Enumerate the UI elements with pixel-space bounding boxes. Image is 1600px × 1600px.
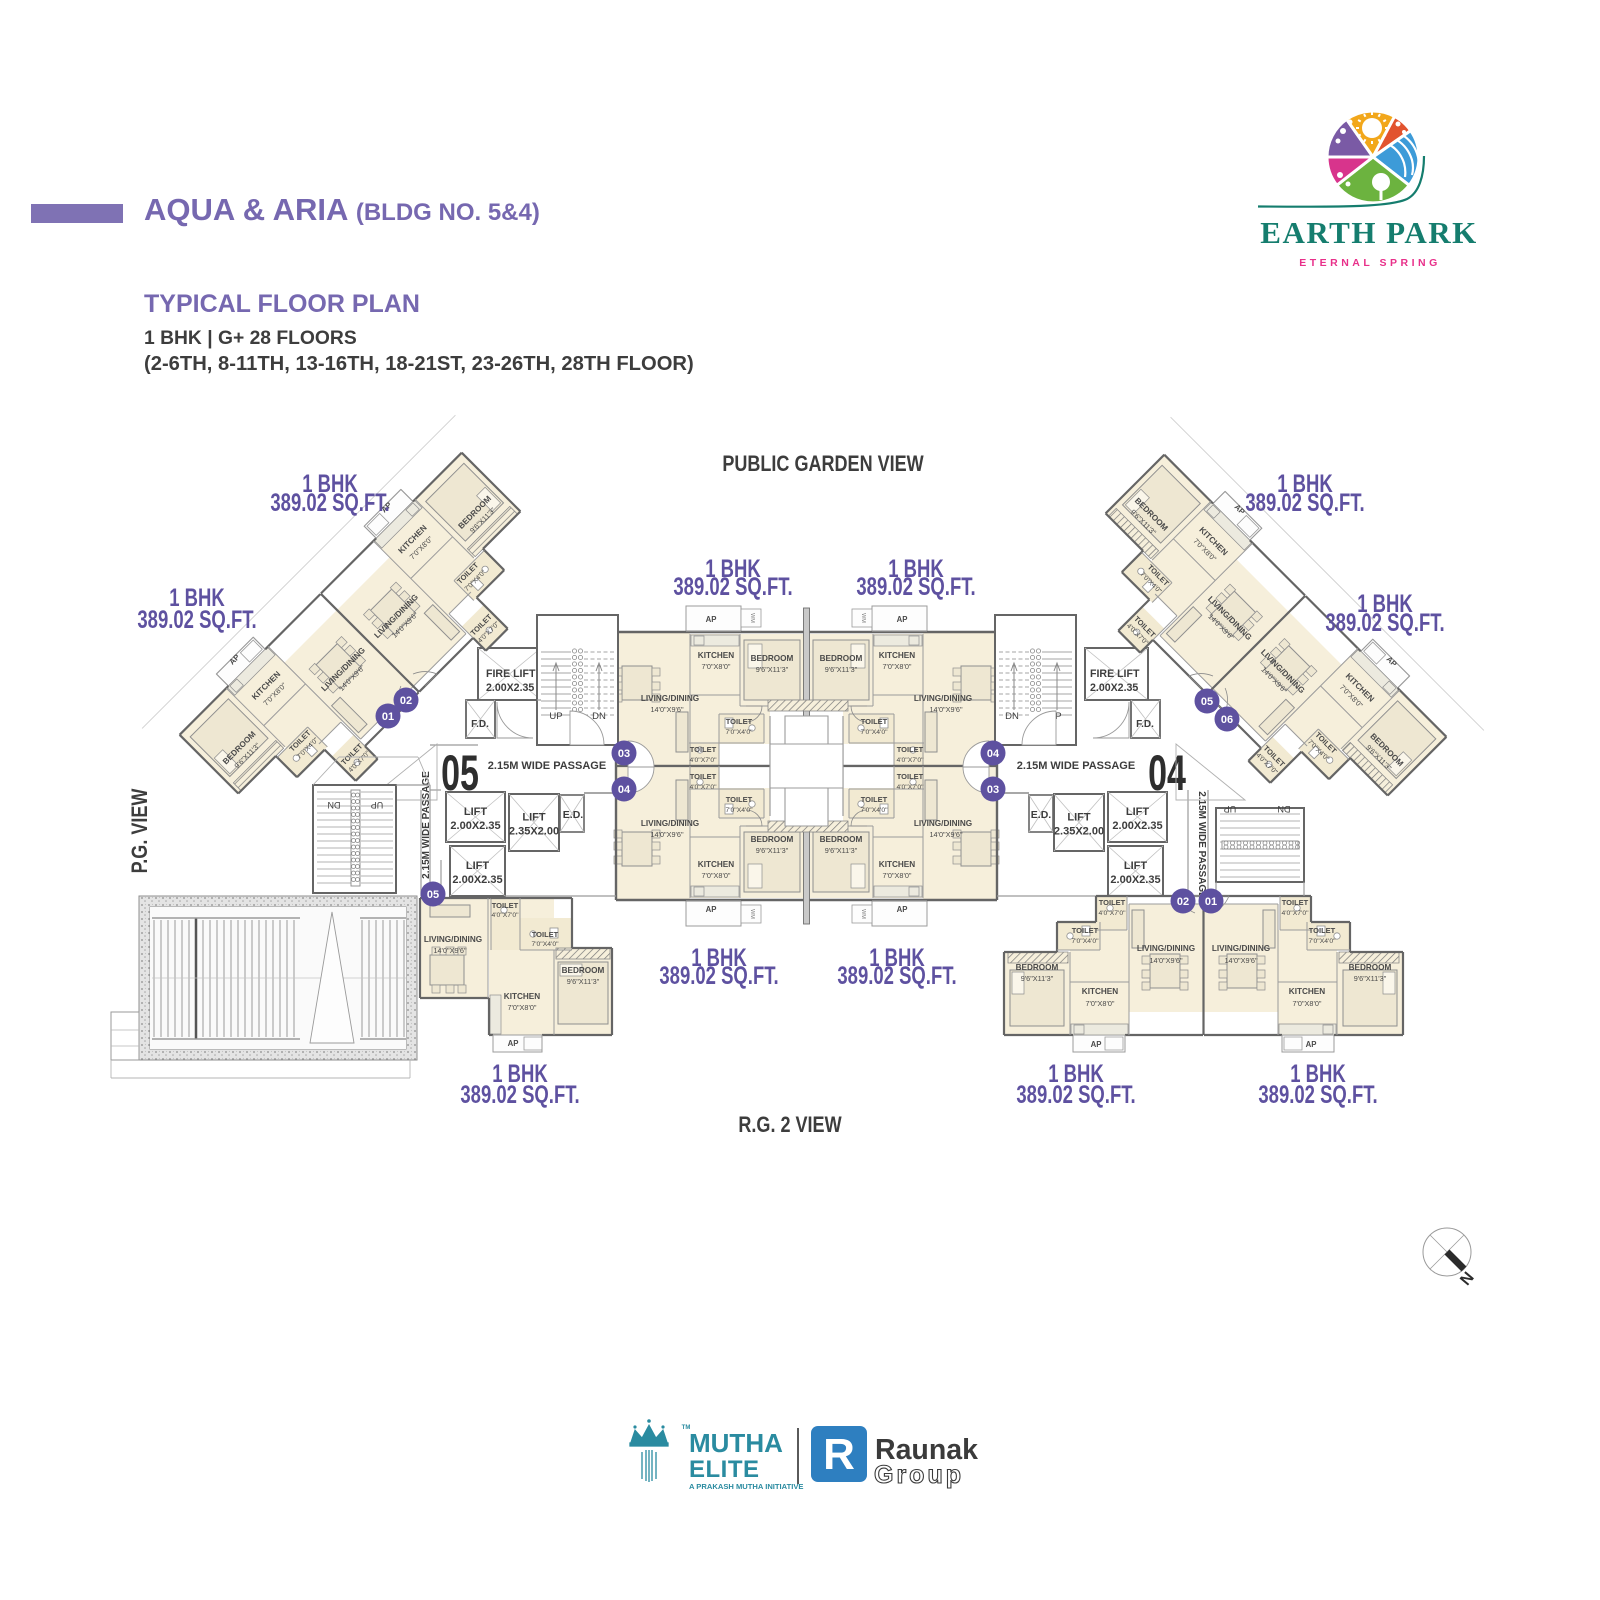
svg-text:4'0"X7'0": 4'0"X7'0" bbox=[1281, 910, 1309, 917]
svg-text:7'0"X8'0": 7'0"X8'0" bbox=[701, 662, 730, 671]
svg-text:7'0"X8'0": 7'0"X8'0" bbox=[701, 871, 730, 880]
svg-text:9'6"X11'3": 9'6"X11'3" bbox=[1354, 974, 1387, 983]
svg-text:LIVING/DINING: LIVING/DINING bbox=[1137, 944, 1195, 953]
svg-text:05: 05 bbox=[427, 889, 439, 901]
svg-text:BEDROOM: BEDROOM bbox=[820, 654, 863, 663]
svg-text:9'6"X11'3": 9'6"X11'3" bbox=[825, 846, 858, 855]
svg-text:01: 01 bbox=[382, 711, 394, 723]
svg-text:01: 01 bbox=[1205, 896, 1217, 908]
svg-text:7'0"X4'0": 7'0"X4'0" bbox=[860, 729, 888, 736]
svg-text:TOILET: TOILET bbox=[1282, 898, 1309, 907]
svg-text:2.15M WIDE PASSAGE: 2.15M WIDE PASSAGE bbox=[1017, 760, 1135, 772]
svg-text:TOILET: TOILET bbox=[1072, 926, 1099, 935]
svg-text:BEDROOM: BEDROOM bbox=[820, 835, 863, 844]
svg-text:389.02 SQ.FT.: 389.02 SQ.FT. bbox=[137, 605, 256, 633]
svg-text:Group: Group bbox=[874, 1461, 964, 1489]
svg-text:1 BHK | G+ 28 FLOORS: 1 BHK | G+ 28 FLOORS bbox=[144, 328, 357, 349]
svg-text:TOILET: TOILET bbox=[897, 745, 924, 754]
svg-text:2.00X2.35: 2.00X2.35 bbox=[486, 682, 534, 694]
svg-text:7'0"X4'0": 7'0"X4'0" bbox=[531, 941, 559, 948]
svg-text:14'0"X9'6": 14'0"X9'6" bbox=[433, 946, 467, 955]
svg-text:4'0"X7'0": 4'0"X7'0" bbox=[689, 757, 717, 764]
svg-text:TOILET: TOILET bbox=[1099, 898, 1126, 907]
svg-text:TOILET: TOILET bbox=[726, 717, 753, 726]
svg-text:LIVING/DINING: LIVING/DINING bbox=[641, 694, 699, 703]
svg-text:389.02 SQ.FT.: 389.02 SQ.FT. bbox=[1258, 1080, 1377, 1108]
svg-text:LIVING/DINING: LIVING/DINING bbox=[914, 819, 972, 828]
svg-text:BEDROOM: BEDROOM bbox=[1016, 963, 1059, 972]
svg-text:KITCHEN: KITCHEN bbox=[1082, 987, 1118, 996]
svg-text:PUBLIC GARDEN VIEW: PUBLIC GARDEN VIEW bbox=[722, 452, 923, 476]
svg-text:7'0"X8'0": 7'0"X8'0" bbox=[1085, 999, 1114, 1008]
svg-text:LIFT: LIFT bbox=[1126, 806, 1149, 818]
svg-text:AP: AP bbox=[706, 615, 717, 624]
svg-text:14'0"X9'6": 14'0"X9'6" bbox=[929, 705, 963, 714]
svg-text:14'0"X9'6": 14'0"X9'6" bbox=[650, 705, 684, 714]
svg-text:(2-6TH, 8-11TH, 13-16TH, 18-21: (2-6TH, 8-11TH, 13-16TH, 18-21ST, 23-26T… bbox=[144, 353, 694, 375]
svg-text:389.02 SQ.FT.: 389.02 SQ.FT. bbox=[673, 572, 792, 600]
svg-text:7'0"X4'0": 7'0"X4'0" bbox=[860, 807, 888, 814]
svg-text:14'0"X9'6": 14'0"X9'6" bbox=[929, 830, 963, 839]
svg-text:WM: WM bbox=[860, 909, 866, 919]
svg-text:2.15M WIDE PASSAGE: 2.15M WIDE PASSAGE bbox=[1196, 791, 1207, 899]
svg-text:9'6"X11'3": 9'6"X11'3" bbox=[756, 665, 789, 674]
svg-text:LIFT: LIFT bbox=[1067, 812, 1090, 824]
svg-text:E.D.: E.D. bbox=[1031, 809, 1052, 821]
svg-text:9'6"X11'3": 9'6"X11'3" bbox=[1021, 974, 1054, 983]
svg-text:A PRAKASH MUTHA INITIATIVE: A PRAKASH MUTHA INITIATIVE bbox=[689, 1482, 803, 1491]
svg-text:7'0"X8'0": 7'0"X8'0" bbox=[507, 1003, 536, 1012]
svg-text:R.G. 2 VIEW: R.G. 2 VIEW bbox=[738, 1113, 841, 1137]
svg-text:2.00X2.35: 2.00X2.35 bbox=[1112, 820, 1162, 832]
svg-text:BEDROOM: BEDROOM bbox=[562, 966, 605, 975]
svg-text:FIRE LIFT: FIRE LIFT bbox=[486, 668, 536, 680]
svg-text:389.02 SQ.FT.: 389.02 SQ.FT. bbox=[1016, 1080, 1135, 1108]
svg-text:E.D.: E.D. bbox=[563, 809, 584, 821]
svg-text:2.00X2.35: 2.00X2.35 bbox=[1110, 874, 1160, 886]
svg-text:KITCHEN: KITCHEN bbox=[879, 651, 915, 660]
svg-text:04: 04 bbox=[987, 748, 1000, 760]
svg-text:KITCHEN: KITCHEN bbox=[879, 860, 915, 869]
svg-text:TOILET: TOILET bbox=[492, 901, 519, 910]
svg-text:AP: AP bbox=[1306, 1040, 1317, 1049]
svg-text:2.00X2.35: 2.00X2.35 bbox=[1090, 682, 1138, 694]
svg-text:7'0"X4'0": 7'0"X4'0" bbox=[725, 729, 753, 736]
svg-text:AP: AP bbox=[508, 1039, 519, 1048]
svg-text:TOILET: TOILET bbox=[897, 772, 924, 781]
svg-text:DN: DN bbox=[1278, 804, 1291, 814]
svg-text:03: 03 bbox=[618, 748, 630, 760]
svg-text:UP: UP bbox=[1224, 804, 1237, 814]
svg-text:BEDROOM: BEDROOM bbox=[751, 835, 794, 844]
svg-text:ETERNAL SPRING: ETERNAL SPRING bbox=[1299, 257, 1441, 269]
svg-text:R: R bbox=[823, 1430, 855, 1479]
svg-text:KITCHEN: KITCHEN bbox=[504, 992, 540, 1001]
svg-text:DN: DN bbox=[1005, 711, 1019, 722]
svg-text:4'0"X7'0": 4'0"X7'0" bbox=[689, 784, 717, 791]
svg-text:389.02 SQ.FT.: 389.02 SQ.FT. bbox=[659, 961, 778, 989]
svg-text:389.02 SQ.FT.: 389.02 SQ.FT. bbox=[460, 1080, 579, 1108]
svg-text:2.35X2.00: 2.35X2.00 bbox=[509, 826, 559, 838]
svg-text:389.02 SQ.FT.: 389.02 SQ.FT. bbox=[270, 488, 389, 516]
svg-text:14'0"X9'6": 14'0"X9'6" bbox=[1149, 956, 1183, 965]
svg-text:P.G. VIEW: P.G. VIEW bbox=[128, 789, 152, 874]
svg-text:KITCHEN: KITCHEN bbox=[698, 651, 734, 660]
svg-text:2.00X2.35: 2.00X2.35 bbox=[452, 874, 502, 886]
svg-text:DN: DN bbox=[592, 711, 606, 722]
svg-text:KITCHEN: KITCHEN bbox=[1289, 987, 1325, 996]
svg-text:MUTHA: MUTHA bbox=[689, 1428, 783, 1458]
svg-text:7'0"X4'0": 7'0"X4'0" bbox=[725, 807, 753, 814]
svg-text:LIFT: LIFT bbox=[1124, 860, 1147, 872]
svg-text:AP: AP bbox=[1091, 1040, 1102, 1049]
svg-text:389.02 SQ.FT.: 389.02 SQ.FT. bbox=[856, 572, 975, 600]
svg-text:9'6"X11'3": 9'6"X11'3" bbox=[567, 977, 600, 986]
svg-text:DN: DN bbox=[328, 800, 341, 810]
svg-text:TOILET: TOILET bbox=[861, 717, 888, 726]
svg-text:EARTH PARK: EARTH PARK bbox=[1260, 215, 1477, 250]
svg-text:TOILET: TOILET bbox=[861, 795, 888, 804]
svg-text:UP: UP bbox=[371, 800, 384, 810]
svg-text:TOILET: TOILET bbox=[532, 930, 559, 939]
svg-text:WM: WM bbox=[860, 613, 866, 623]
svg-text:AP: AP bbox=[706, 905, 717, 914]
svg-text:LIVING/DINING: LIVING/DINING bbox=[914, 694, 972, 703]
svg-text:LIFT: LIFT bbox=[522, 812, 545, 824]
svg-text:AP: AP bbox=[897, 905, 908, 914]
svg-text:389.02 SQ.FT.: 389.02 SQ.FT. bbox=[1245, 488, 1364, 516]
svg-text:06: 06 bbox=[1221, 714, 1233, 726]
svg-text:04: 04 bbox=[618, 784, 631, 796]
svg-text:9'6"X11'3": 9'6"X11'3" bbox=[825, 665, 858, 674]
svg-text:14'0"X9'6": 14'0"X9'6" bbox=[1224, 956, 1258, 965]
svg-text:KITCHEN: KITCHEN bbox=[698, 860, 734, 869]
svg-text:AP: AP bbox=[897, 615, 908, 624]
svg-text:02: 02 bbox=[1177, 896, 1189, 908]
svg-text:9'6"X11'3": 9'6"X11'3" bbox=[756, 846, 789, 855]
svg-text:05: 05 bbox=[1201, 696, 1213, 708]
svg-text:4'0"X7'0": 4'0"X7'0" bbox=[896, 784, 924, 791]
svg-text:7'0"X8'0": 7'0"X8'0" bbox=[882, 871, 911, 880]
svg-text:TOILET: TOILET bbox=[1309, 926, 1336, 935]
svg-text:7'0"X4'0": 7'0"X4'0" bbox=[1308, 938, 1336, 945]
svg-text:WM: WM bbox=[749, 909, 755, 919]
svg-text:ELITE: ELITE bbox=[689, 1456, 760, 1483]
svg-text:TOILET: TOILET bbox=[690, 772, 717, 781]
svg-text:LIVING/DINING: LIVING/DINING bbox=[424, 935, 482, 944]
svg-text:2.15M WIDE PASSAGE: 2.15M WIDE PASSAGE bbox=[488, 760, 606, 772]
svg-text:14'0"X9'6": 14'0"X9'6" bbox=[650, 830, 684, 839]
svg-text:LIVING/DINING: LIVING/DINING bbox=[641, 819, 699, 828]
svg-text:TOILET: TOILET bbox=[726, 795, 753, 804]
svg-text:4'0"X7'0": 4'0"X7'0" bbox=[896, 757, 924, 764]
svg-text:FIRE LIFT: FIRE LIFT bbox=[1090, 668, 1140, 680]
svg-text:7'0"X4'0": 7'0"X4'0" bbox=[1071, 938, 1099, 945]
svg-text:LIVING/DINING: LIVING/DINING bbox=[1212, 944, 1270, 953]
svg-text:7'0"X8'0": 7'0"X8'0" bbox=[1292, 999, 1321, 1008]
svg-text:UP: UP bbox=[549, 711, 562, 722]
svg-text:F.D.: F.D. bbox=[471, 719, 489, 730]
svg-text:7'0"X8'0": 7'0"X8'0" bbox=[882, 662, 911, 671]
svg-text:LIFT: LIFT bbox=[464, 806, 487, 818]
svg-text:WM: WM bbox=[749, 613, 755, 623]
svg-text:F.D.: F.D. bbox=[1136, 719, 1154, 730]
svg-text:389.02 SQ.FT.: 389.02 SQ.FT. bbox=[837, 961, 956, 989]
svg-text:4'0"X7'0": 4'0"X7'0" bbox=[1098, 910, 1126, 917]
svg-text:03: 03 bbox=[987, 784, 999, 796]
svg-text:02: 02 bbox=[400, 695, 412, 707]
svg-text:BEDROOM: BEDROOM bbox=[751, 654, 794, 663]
svg-text:TYPICAL FLOOR PLAN: TYPICAL FLOOR PLAN bbox=[144, 290, 420, 318]
svg-text:2.35X2.00: 2.35X2.00 bbox=[1054, 826, 1104, 838]
svg-text:BEDROOM: BEDROOM bbox=[1349, 963, 1392, 972]
svg-text:389.02 SQ.FT.: 389.02 SQ.FT. bbox=[1325, 608, 1444, 636]
svg-text:2.00X2.35: 2.00X2.35 bbox=[450, 820, 500, 832]
svg-text:TOILET: TOILET bbox=[690, 745, 717, 754]
svg-text:LIFT: LIFT bbox=[466, 860, 489, 872]
svg-text:4'0"X7'0": 4'0"X7'0" bbox=[491, 912, 519, 919]
